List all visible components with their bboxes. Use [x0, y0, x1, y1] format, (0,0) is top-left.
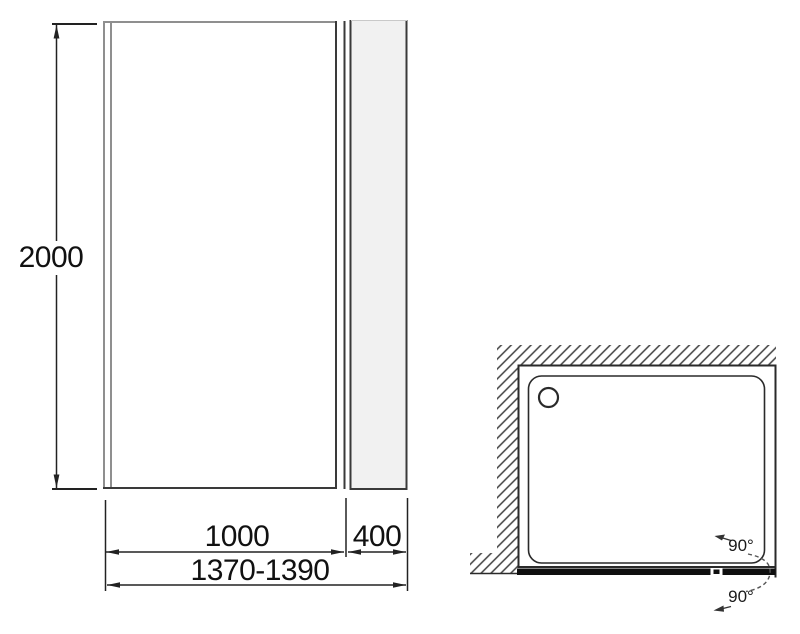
- top-view: [470, 345, 776, 612]
- wall-hatch-left: [497, 345, 518, 573]
- arrow-down: [54, 475, 60, 489]
- technical-drawing-canvas: 2000 1000 400 1370-1390 90° 90°: [0, 0, 800, 634]
- wall-hatch-floor-corner: [470, 553, 497, 574]
- drain-circle-icon: [539, 388, 558, 407]
- arrow-right-range: [393, 582, 406, 587]
- angle-lower-arrow: [714, 606, 725, 612]
- arrow-up: [54, 25, 60, 39]
- arrow-left-range: [107, 582, 120, 587]
- side-panel-fill: [351, 21, 407, 490]
- tray-inner-rect: [529, 376, 765, 563]
- front-view: [103, 20, 407, 490]
- side-panel-width-dimension-label: 400: [347, 522, 407, 552]
- angle-upper-label: 90°: [722, 537, 760, 554]
- arrow-left-1000: [106, 549, 119, 554]
- height-dimension-label: 2000: [16, 241, 86, 275]
- door-width-dimension-label: 1000: [187, 522, 287, 552]
- total-width-range-dimension-label: 1370-1390: [158, 556, 362, 586]
- arrow-right-1000: [331, 549, 344, 554]
- screen-bar: [517, 569, 776, 576]
- angle-lower-label: 90°: [722, 588, 760, 605]
- wall-hatch-top: [518, 345, 776, 365]
- screen-bracket: [714, 570, 720, 575]
